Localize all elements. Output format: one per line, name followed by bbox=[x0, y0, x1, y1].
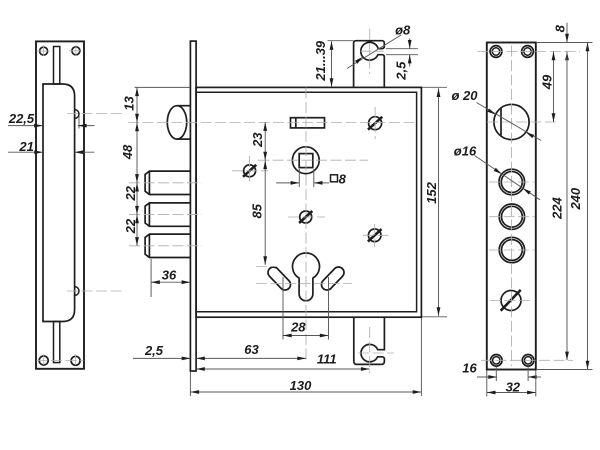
svg-text:240: 240 bbox=[568, 187, 583, 210]
svg-text:23: 23 bbox=[250, 132, 265, 148]
svg-text:16: 16 bbox=[462, 361, 477, 376]
svg-text:36: 36 bbox=[162, 267, 177, 282]
svg-text:22: 22 bbox=[123, 185, 138, 201]
svg-text:32: 32 bbox=[506, 380, 521, 395]
svg-text:22: 22 bbox=[123, 218, 138, 234]
svg-text:48: 48 bbox=[120, 144, 135, 160]
svg-text:13: 13 bbox=[121, 96, 136, 111]
svg-text:2,5: 2,5 bbox=[394, 61, 409, 81]
svg-text:8: 8 bbox=[553, 24, 568, 32]
svg-text:ø8: ø8 bbox=[395, 22, 411, 37]
svg-text:49: 49 bbox=[539, 74, 554, 90]
svg-text:8: 8 bbox=[339, 171, 347, 186]
svg-text:63: 63 bbox=[244, 342, 259, 357]
svg-text:111: 111 bbox=[317, 352, 337, 367]
svg-text:ø16: ø16 bbox=[454, 143, 477, 158]
svg-text:85: 85 bbox=[249, 203, 264, 218]
svg-text:21...39: 21...39 bbox=[313, 40, 328, 82]
svg-text:28: 28 bbox=[290, 319, 306, 334]
svg-text:130: 130 bbox=[290, 378, 312, 393]
svg-text:152: 152 bbox=[424, 181, 439, 203]
svg-text:ø 20: ø 20 bbox=[451, 88, 478, 103]
svg-text:224: 224 bbox=[549, 196, 564, 219]
svg-text:2,5: 2,5 bbox=[144, 343, 164, 358]
svg-text:21: 21 bbox=[18, 139, 33, 154]
svg-text:22,5: 22,5 bbox=[8, 111, 35, 126]
